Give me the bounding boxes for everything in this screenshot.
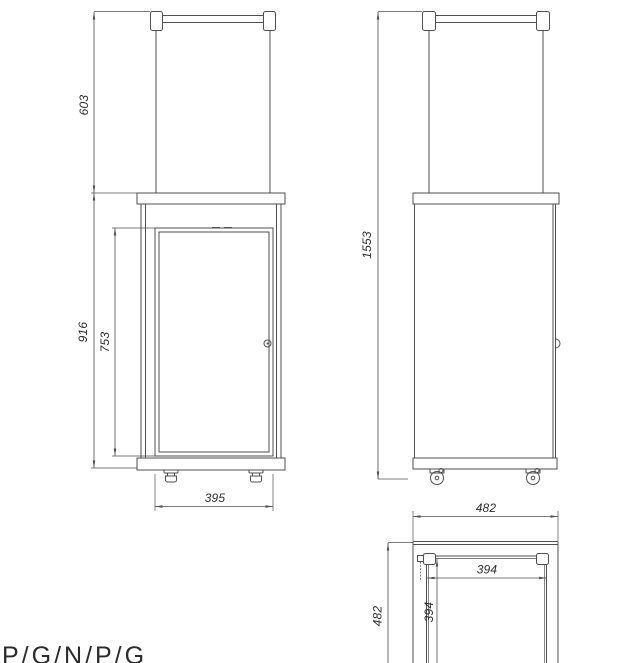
dim-label-395: 395	[205, 491, 226, 505]
side-handle-cap-right	[537, 12, 550, 31]
dim-label-603: 603	[77, 95, 91, 116]
dim-label-394-depth: 394	[422, 602, 436, 623]
top-view: 482 394 394 482	[371, 501, 559, 663]
dim-front-door-height: 753	[98, 228, 155, 456]
drawing-canvas: 603 916 753 395	[0, 0, 624, 663]
dim-front-door-width: 395	[155, 474, 273, 511]
front-bottom-plate	[137, 458, 285, 470]
top-inner-frame	[427, 564, 547, 663]
side-caster-right	[526, 469, 540, 485]
dim-front-body-height: 916	[76, 193, 137, 468]
technical-drawing-page: 603 916 753 395	[0, 0, 624, 663]
side-handle-bar	[423, 12, 550, 31]
front-handle-bar	[151, 12, 276, 31]
front-foot-right	[249, 470, 263, 482]
front-view: 603 916 753 395	[76, 12, 285, 512]
front-door-handle	[264, 340, 271, 347]
dim-label-753: 753	[98, 332, 112, 353]
top-post-left	[424, 554, 436, 565]
dim-label-482-width: 482	[476, 501, 497, 515]
front-door	[155, 228, 273, 457]
dim-top-inner-width: 394	[427, 563, 547, 579]
side-door-handle	[556, 339, 561, 348]
front-handle-cap-right	[264, 12, 276, 31]
dim-label-1553: 1553	[360, 231, 374, 259]
side-body	[415, 204, 556, 458]
top-corner-fitting	[418, 556, 424, 582]
side-top-plate	[413, 193, 559, 204]
front-foot-left	[164, 470, 178, 482]
dim-top-inner-depth: 394	[422, 559, 437, 663]
side-bottom-plate	[413, 458, 557, 469]
dim-side-total-height: 1553	[360, 12, 422, 480]
front-top-plate	[137, 193, 285, 204]
top-post-right	[537, 554, 549, 565]
dim-label-916: 916	[76, 322, 90, 343]
dim-label-482-depth: 482	[371, 606, 385, 627]
side-handle-cap-left	[423, 12, 436, 31]
side-caster-left	[430, 469, 444, 485]
dim-label-394-width: 394	[477, 563, 498, 577]
front-body	[141, 204, 281, 458]
front-handle-cap-left	[151, 12, 163, 31]
side-view: 1553	[360, 12, 560, 485]
dim-top-outer-depth: 482	[371, 543, 414, 663]
dim-front-handle-height: 603	[77, 12, 150, 194]
dim-top-outer-width: 482	[413, 501, 558, 541]
model-code-text: P/G/N/P/G	[2, 642, 147, 663]
